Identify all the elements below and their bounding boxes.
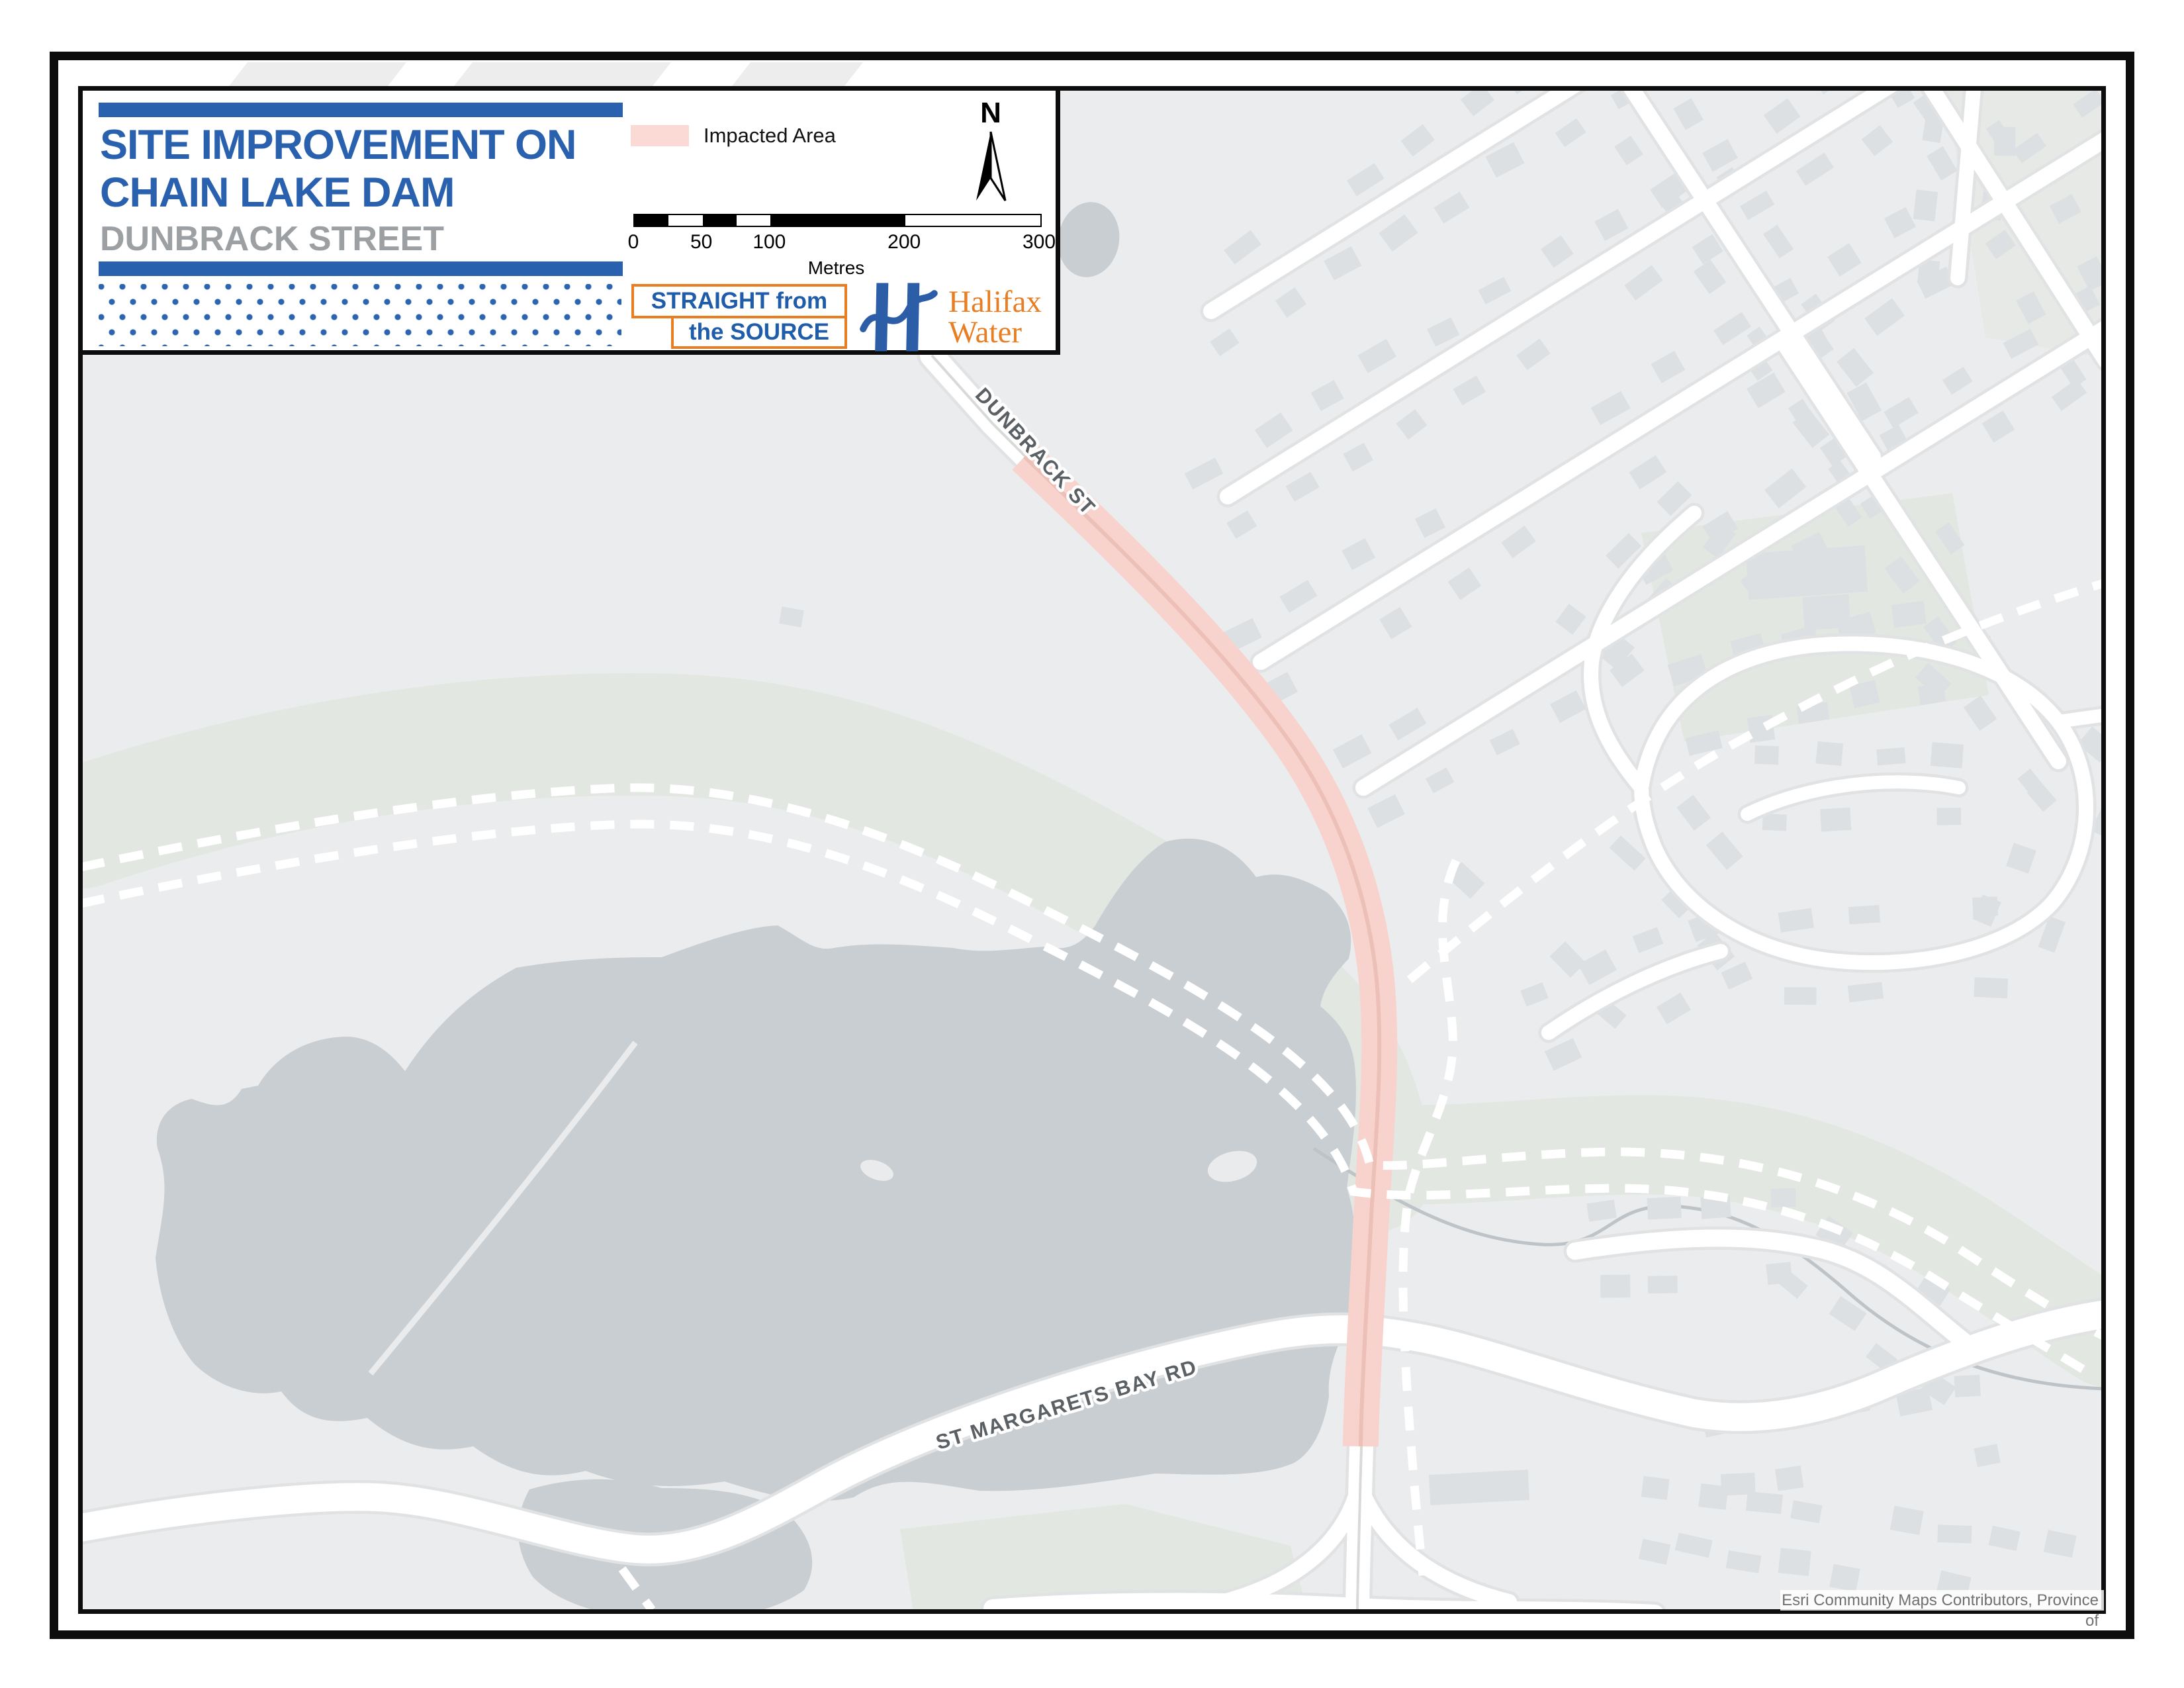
- impacted-area-label: Impacted Area: [704, 124, 836, 148]
- scale-bar-segment: [905, 215, 1040, 226]
- scale-tick-label: 50: [690, 231, 712, 254]
- legend-item-impacted-area: Impacted Area: [631, 124, 836, 148]
- scale-tick-label: 200: [887, 231, 921, 254]
- scale-bar: [633, 214, 1042, 227]
- dot-pattern: [99, 284, 621, 346]
- sfs-line1: STRAIGHT from: [651, 288, 827, 314]
- scale-tick-label: 300: [1023, 231, 1056, 254]
- water-word: Water: [948, 317, 1042, 348]
- map-title-line1: SITE IMPROVEMENT ON: [100, 121, 576, 169]
- title-accent-bar-top: [99, 103, 623, 117]
- halifax-word: Halifax: [948, 287, 1042, 317]
- scale-tick-label: 100: [752, 231, 786, 254]
- title-accent-bar-bottom: [99, 261, 623, 276]
- scale-bar-ticks: 050100200300: [633, 231, 1039, 254]
- page: { "header": { "title_line1": "SITE IMPRO…: [0, 0, 2184, 1688]
- halifax-water-monogram-icon: [858, 280, 939, 354]
- scale-bar-segment: [703, 215, 737, 226]
- title-legend-panel: SITE IMPROVEMENT ON CHAIN LAKE DAM DUNBR…: [78, 86, 1060, 355]
- halifax-water-logo: Halifax Water: [858, 280, 1042, 354]
- north-arrow-icon: [966, 128, 1016, 205]
- scale-bar-unit: Metres: [633, 258, 1039, 279]
- sfs-line2: the SOURCE: [689, 319, 829, 346]
- map-attribution: Esri Community Maps Contributors, Provin…: [1780, 1590, 2104, 1611]
- halifax-water-wordmark: Halifax Water: [948, 287, 1042, 348]
- scale-tick-label: 0: [628, 231, 639, 254]
- scale-bar-segment: [770, 215, 905, 226]
- north-arrow: N: [964, 99, 1017, 208]
- scale-bar-segment: [668, 215, 702, 226]
- scale-bar-segment: [635, 215, 668, 226]
- north-label: N: [964, 99, 1017, 128]
- impacted-area-swatch: [631, 125, 689, 146]
- map-subtitle: DUNBRACK STREET: [100, 219, 444, 259]
- map-title-line2: CHAIN LAKE DAM: [100, 169, 454, 216]
- scale-bar-segment: [737, 215, 770, 226]
